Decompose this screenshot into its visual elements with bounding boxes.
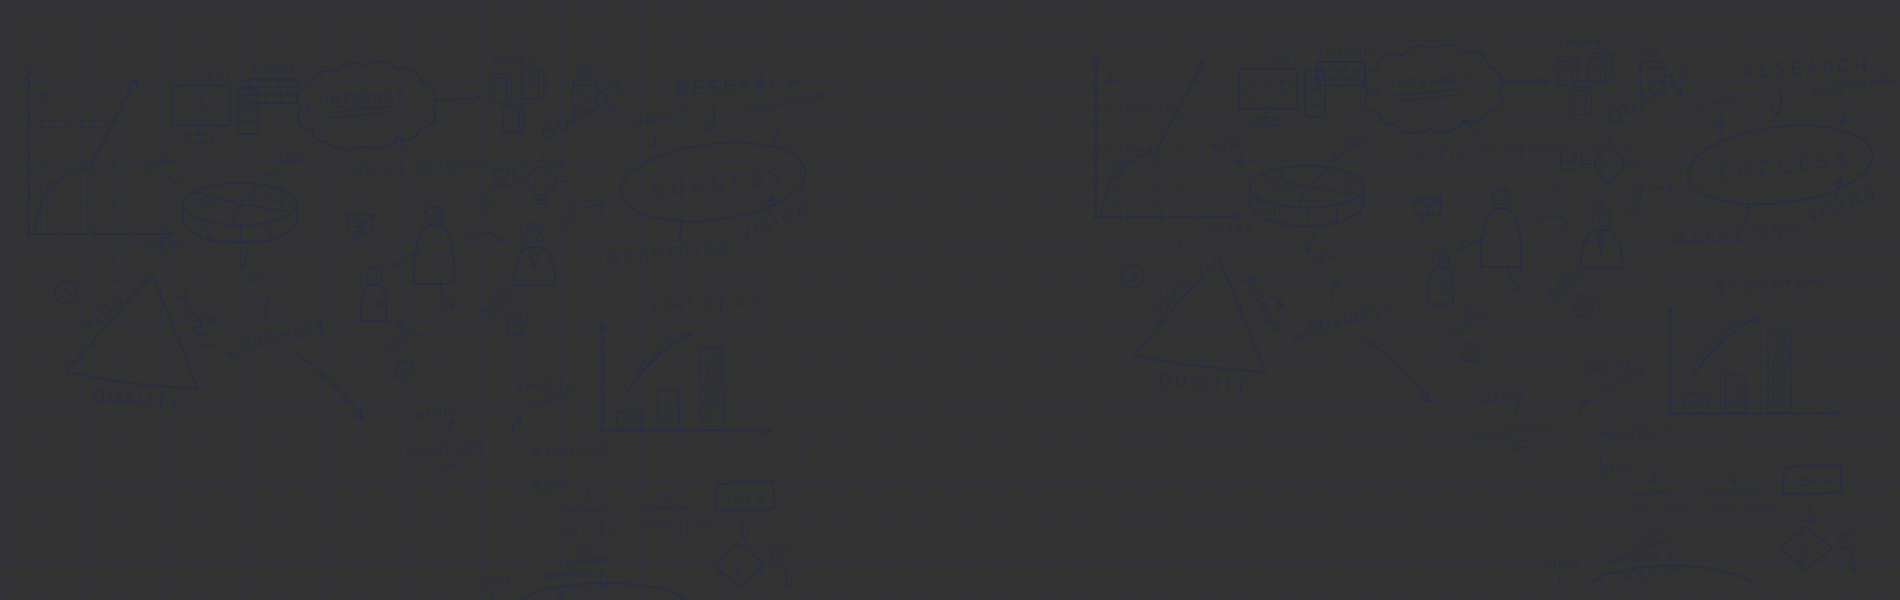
doodle-layer: $ YEARS CLIENT (0, 0, 1900, 600)
hero-banner-background: $ YEARS CLIENT (0, 0, 1900, 600)
doodle-tile-copy-1 (24, 56, 827, 600)
doodle-tile-copy-2 (1091, 39, 1894, 583)
